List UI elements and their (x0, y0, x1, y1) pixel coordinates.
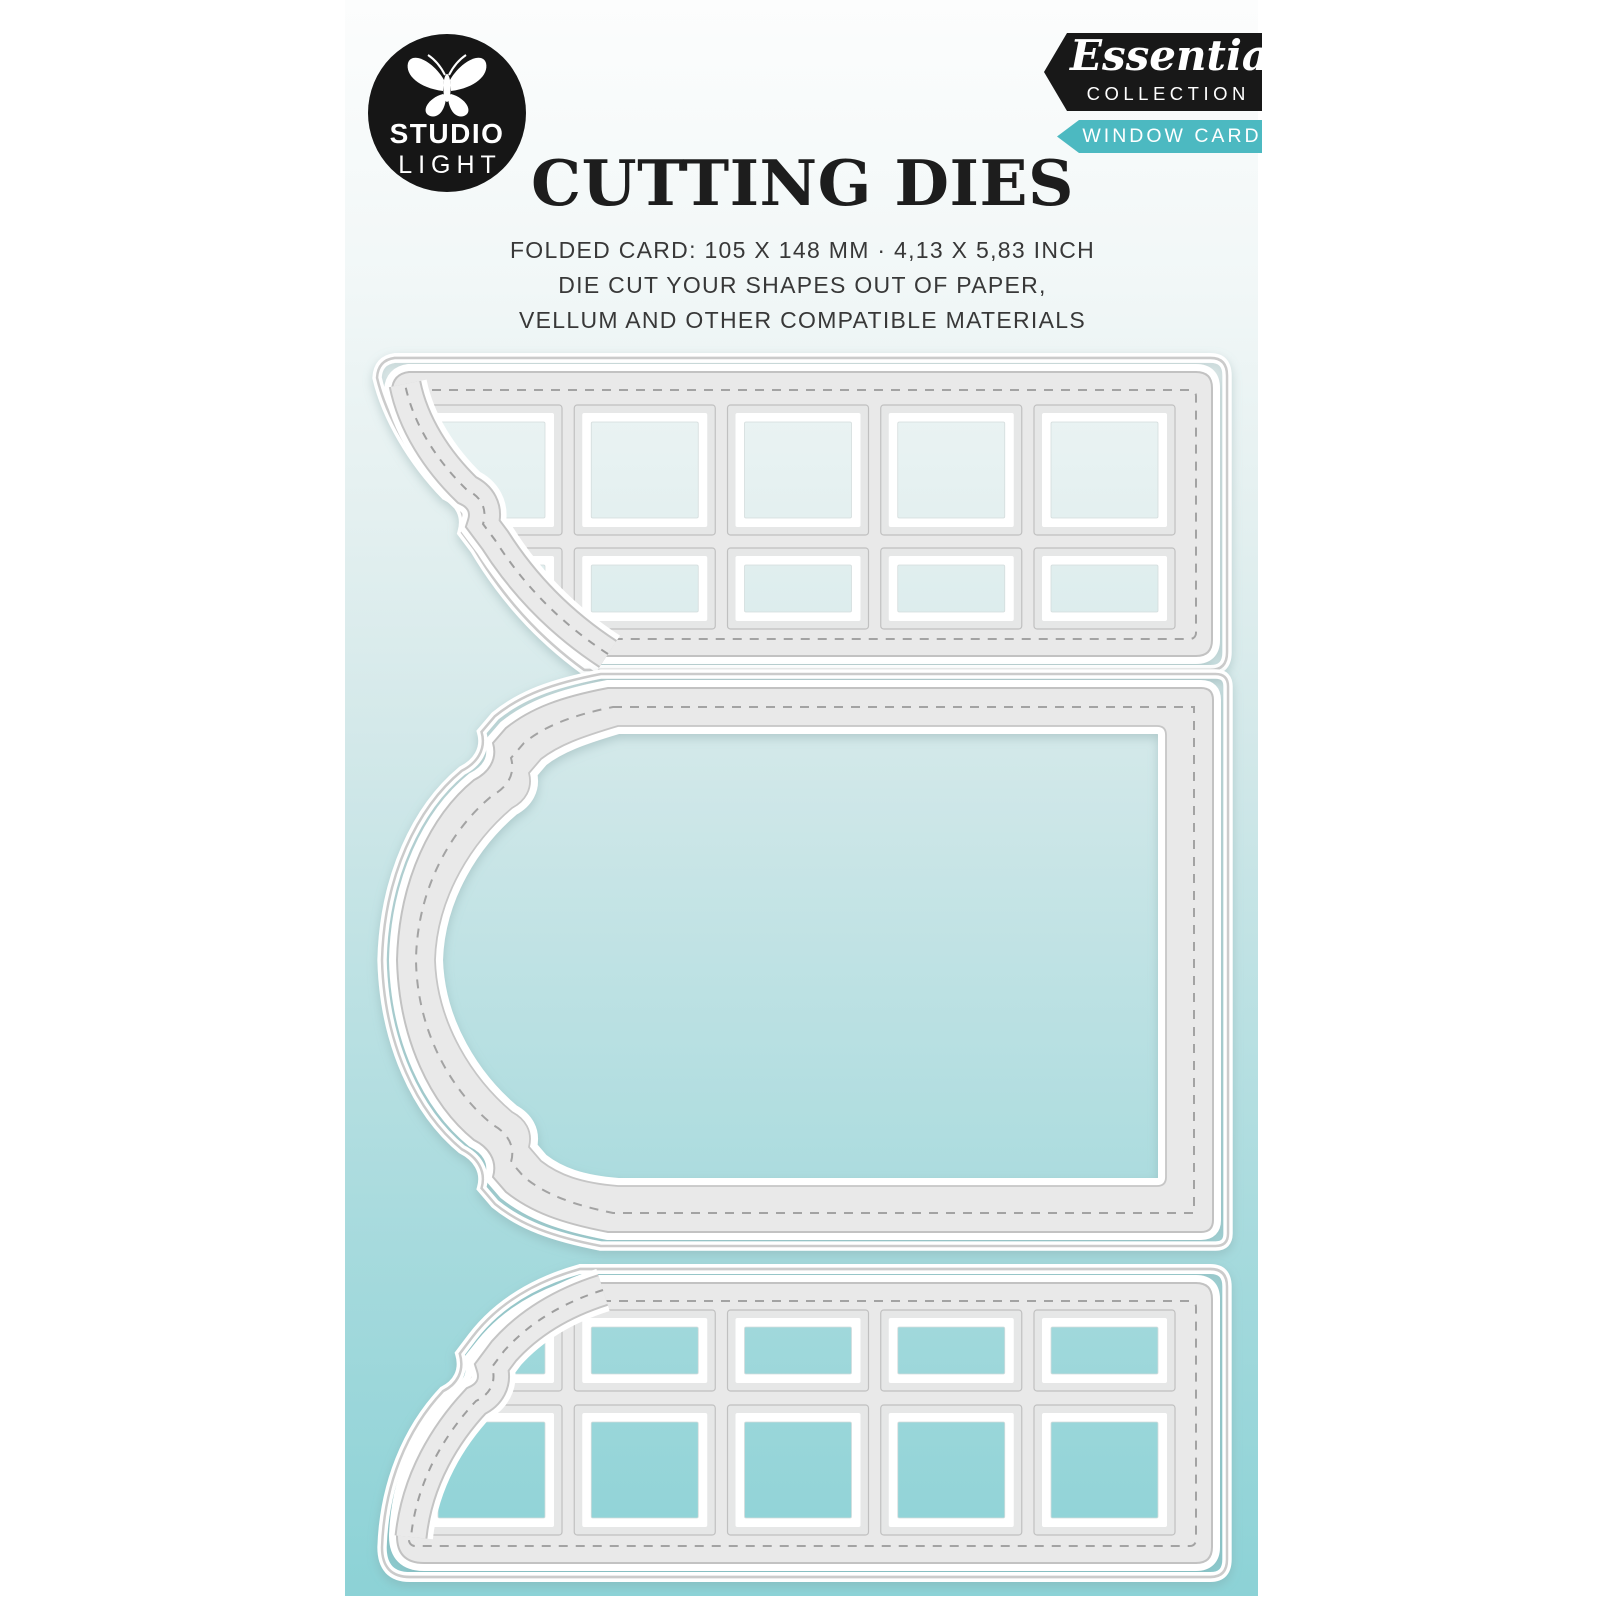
window-pane-part (745, 422, 852, 518)
window-pane-part (1051, 1327, 1158, 1374)
window-pane-part (1051, 565, 1158, 612)
window-pane-part (1051, 1422, 1158, 1518)
window-pane-part (745, 565, 852, 612)
window-pane-part (745, 1327, 852, 1374)
window-pane-part (591, 422, 698, 518)
collection-banner: Essentials COLLECTION (1044, 33, 1262, 111)
description-line-2: DIE CUT YOUR SHAPES OUT OF PAPER, (345, 268, 1260, 303)
window-pane-part (591, 565, 698, 612)
description-line-1: FOLDED CARD: 105 X 148 MM · 4,13 X 5,83 … (345, 233, 1260, 268)
page-title: CUTTING DIES (345, 146, 1260, 220)
window-pane-part (1051, 422, 1158, 518)
collection-script-text: Essentials (1070, 31, 1262, 80)
window-pane-part (898, 422, 1005, 518)
description-line-3: VELLUM AND OTHER COMPATIBLE MATERIALS (345, 303, 1260, 338)
window-pane-part (898, 565, 1005, 612)
product-description: FOLDED CARD: 105 X 148 MM · 4,13 X 5,83 … (345, 233, 1260, 338)
butterfly-icon (399, 44, 495, 120)
window-pane-part (898, 1327, 1005, 1374)
product-sheet: STUDIO LIGHT Essentials COLLECTION WINDO… (0, 0, 1600, 1600)
window-pane-part (591, 1327, 698, 1374)
window-pane-part (745, 1422, 852, 1518)
window-pane-part (591, 1422, 698, 1518)
bottom-window-grid-die (382, 1269, 1227, 1577)
collection-caps-text: COLLECTION (1070, 83, 1262, 105)
window-pane-part (898, 1422, 1005, 1518)
